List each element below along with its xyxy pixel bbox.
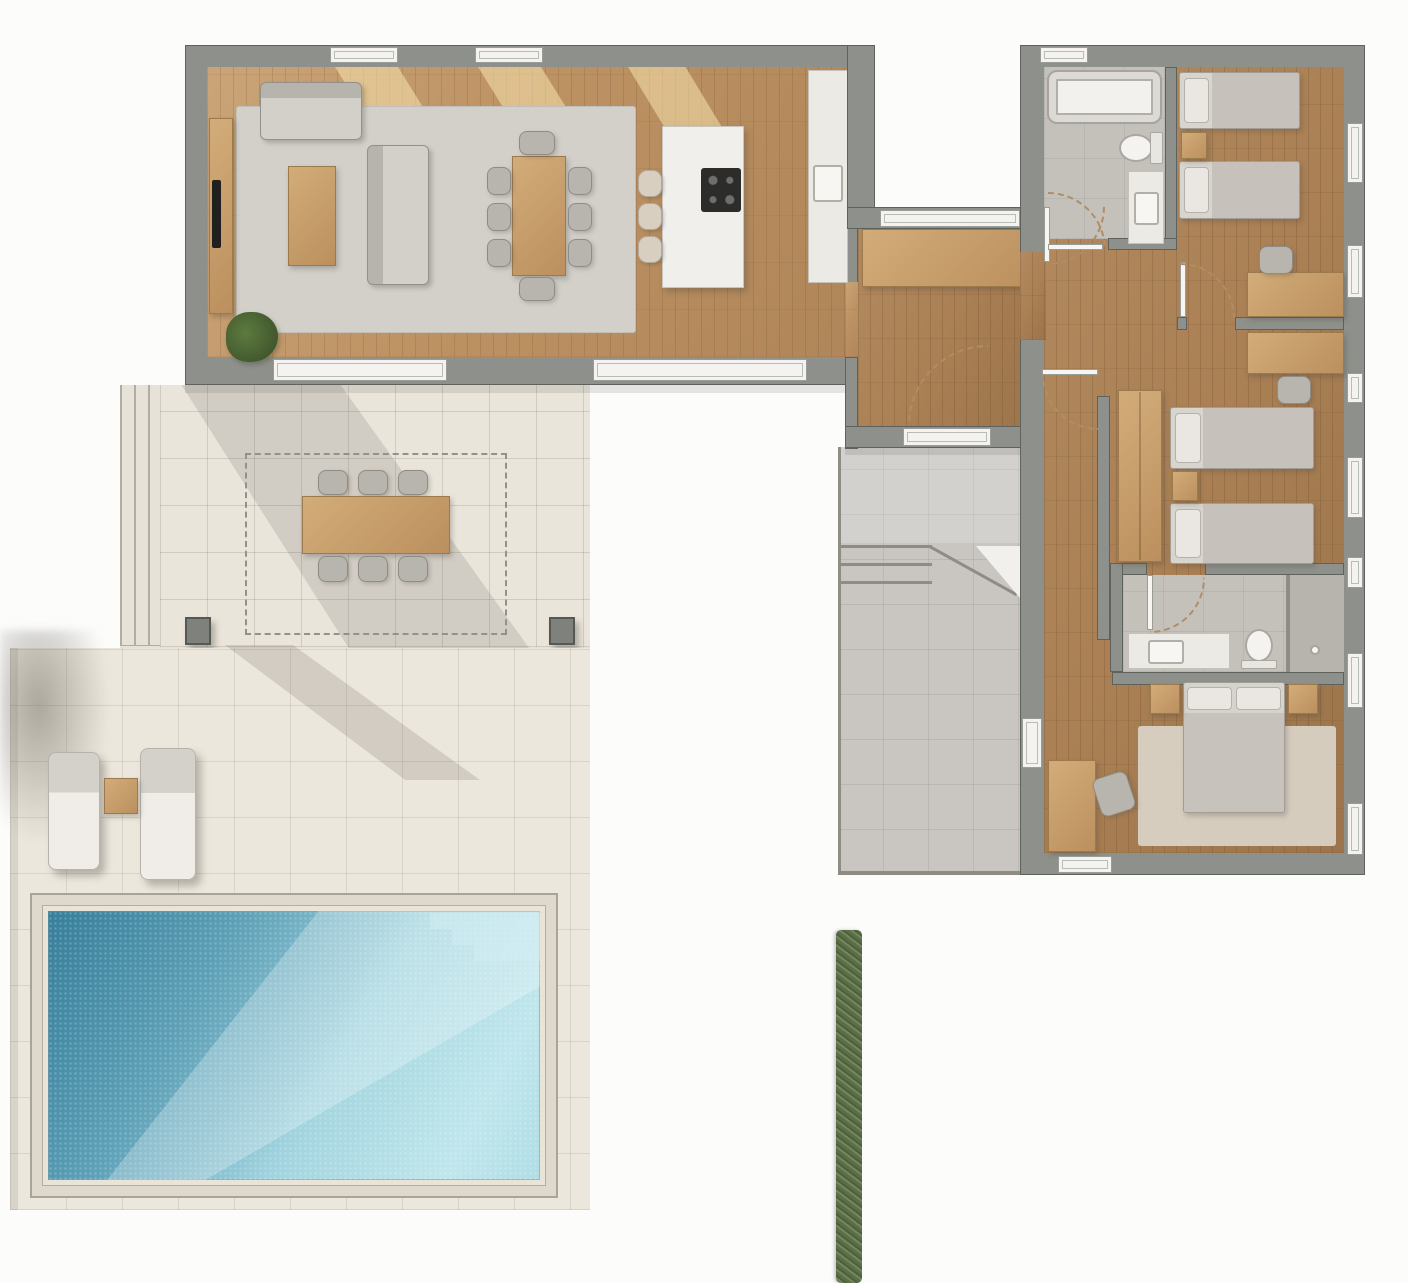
bar-stool-3 [638,236,662,263]
pool-water-texture [48,911,540,1180]
outdoor-chair-1 [318,470,348,495]
window-east-1 [1347,123,1363,183]
nightstand-master-right [1288,684,1318,714]
sun-lounger-2 [140,748,196,880]
washbasin-1 [1134,192,1159,225]
window-wing-top [1040,47,1088,63]
wardrobe-divider [1139,392,1141,560]
pool-step-2 [452,929,540,945]
outdoor-chair-6 [398,556,428,582]
master-desk [1048,760,1096,852]
dining-chair-head-bottom [519,277,555,301]
dining-chair-1 [487,167,511,195]
patio-step-1 [838,545,932,548]
pool-step-3 [474,945,540,961]
front-door [880,210,1020,227]
pool-step-1 [430,913,540,929]
window-east-6 [1347,653,1363,708]
pillow-bed-1 [1184,78,1209,123]
toilet-bowl-2 [1245,629,1273,662]
sliding-door-terrace-1 [273,359,447,381]
bathtub [1047,70,1162,124]
dining-chair-2 [487,203,511,231]
master-pillow-left [1187,687,1232,710]
patio-south-edge [838,871,1020,875]
pillow-bed-2 [1184,167,1209,213]
outdoor-chair-4 [318,556,348,582]
desk-bedroom1 [1247,272,1344,317]
kitchen-east-wall [847,45,875,208]
sliding-door-terrace-2 [593,359,807,381]
dining-table [512,156,566,276]
desk-bedroom2 [1247,332,1344,374]
window-east-4 [1347,457,1363,518]
wall-bedroom1-south-right [1235,317,1344,330]
back-door [903,428,991,446]
dining-chair-4 [568,167,592,195]
wall-bedroom2-west [1097,396,1110,640]
toilet-bowl-1 [1119,134,1153,162]
outdoor-dining-table [302,496,450,554]
patio-west-edge [838,447,841,875]
desk-chair-bedroom1 [1259,246,1293,274]
tv-screen [212,180,221,248]
sun-lounger-1 [48,752,100,870]
window-living-1 [330,47,398,63]
dining-chair-5 [568,203,592,231]
sofa-side [367,145,429,285]
nightstand-master-left [1150,684,1180,714]
wall-bath1-east [1165,67,1177,250]
pillow-bed-3 [1175,413,1201,463]
patio-door [1022,718,1042,768]
patio-floor [838,447,1020,875]
toilet-tank-2 [1241,660,1277,669]
outdoor-chair-3 [398,470,428,495]
pillow-bed-4 [1175,509,1201,558]
wall-bedroom1-south-left [1177,317,1187,330]
nightstand-bedroom2 [1172,471,1198,501]
patio-step-3 [838,581,932,584]
shower-head [1310,645,1320,655]
master-pillow-right [1236,687,1281,710]
window-east-2 [1347,245,1363,298]
desk-chair-bedroom2 [1277,376,1311,404]
bar-stool-2 [638,203,662,230]
window-living-2 [475,47,543,63]
floor-plan-canvas [0,0,1408,1283]
shower-partition [1286,575,1290,672]
hall-passage-floor [1020,252,1046,340]
entry-sideboard [862,229,1032,287]
dining-chair-3 [487,239,511,267]
washbasin-2 [1148,640,1184,664]
nightstand-bedroom1 [1181,132,1207,159]
sofa-main [260,82,362,140]
wall-bath2-west [1110,563,1123,672]
kitchen-sink [813,165,843,202]
pergola-column-left [185,617,211,645]
window-east-3 [1347,373,1363,403]
toilet-tank-1 [1150,132,1163,164]
outdoor-chair-2 [358,470,388,495]
dining-chair-head-top [519,131,555,155]
wall-bath2-north-right [1205,563,1344,575]
window-wing-south [1058,856,1112,873]
outdoor-chair-5 [358,556,388,582]
garden-hedge [836,930,862,1283]
patio-step-2 [838,563,932,566]
shower-area [1289,575,1344,672]
lounger-side-table [104,778,138,814]
coffee-table [288,166,336,266]
bar-stool-1 [638,170,662,197]
window-east-5 [1347,557,1363,588]
dining-chair-6 [568,239,592,267]
window-east-7 [1347,803,1363,855]
island-cooktop [701,168,741,212]
pergola-column-right [549,617,575,645]
